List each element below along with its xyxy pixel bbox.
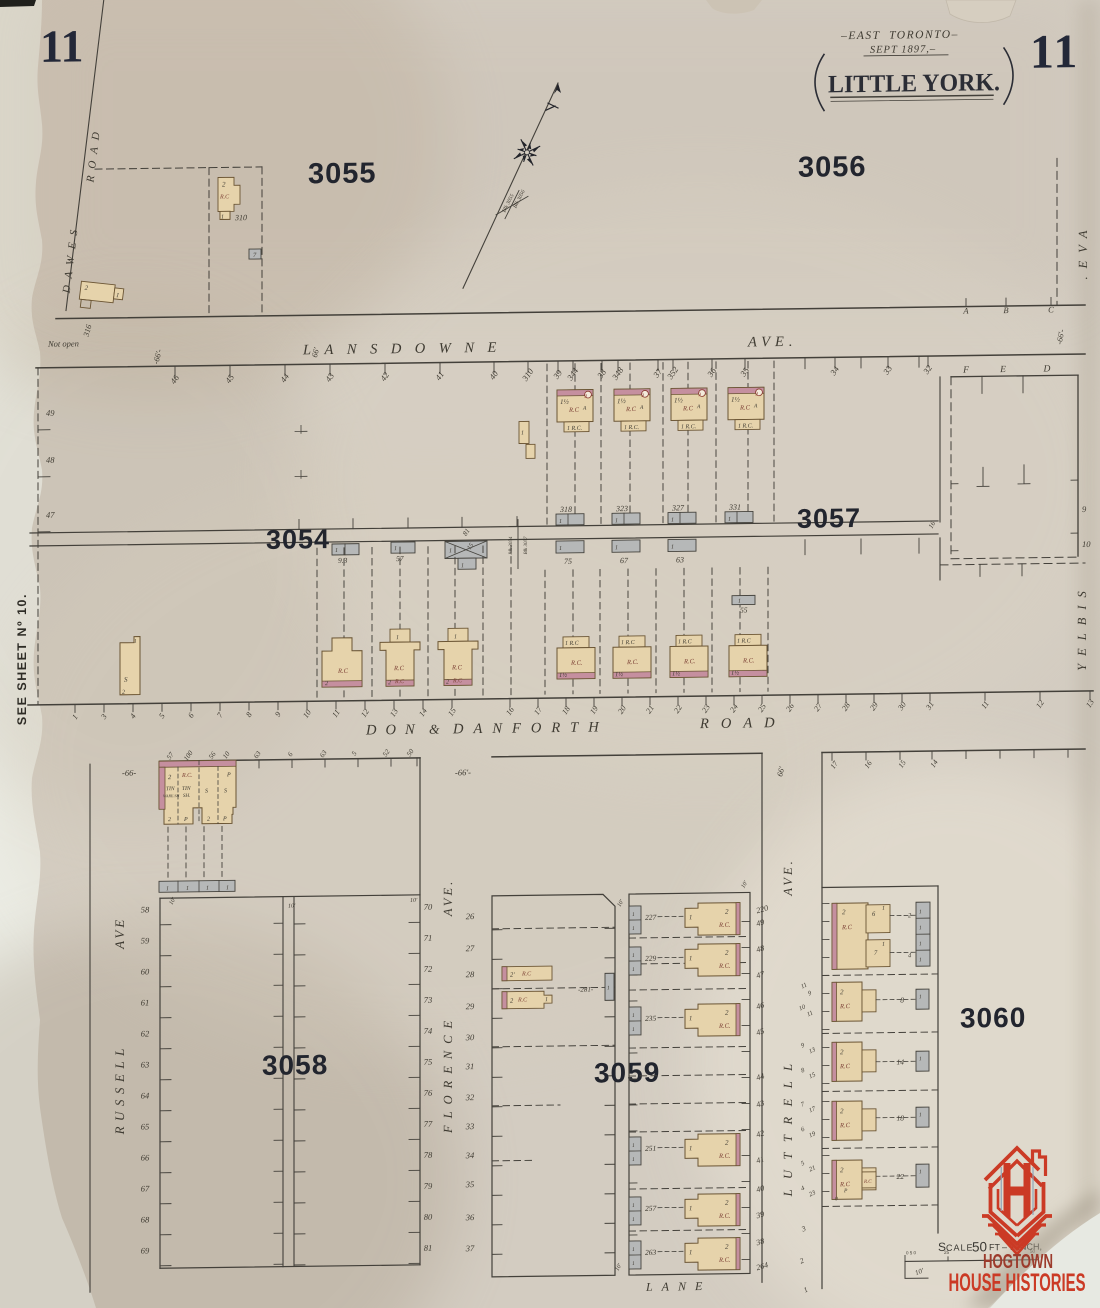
svg-text:R.C.: R.C. [718,922,731,929]
svg-text:1 R.C: 1 R.C [737,638,752,644]
svg-text:LANSDOWNE: LANSDOWNE [302,340,510,359]
svg-text:SEPT 1897,–: SEPT 1897,– [870,44,936,56]
svg-text:A: A [582,406,587,412]
svg-text:229: 229 [645,954,656,963]
svg-text:71: 71 [424,933,432,943]
svg-text:1: 1 [632,1261,635,1267]
svg-text:DANFORTH: DANFORTH [452,719,609,737]
svg-text:R.C.: R.C. [742,657,755,664]
svg-text:28: 28 [466,969,475,979]
svg-text:75: 75 [424,1057,432,1067]
svg-text:9: 9 [584,394,587,400]
svg-text:2: 2 [446,679,449,685]
svg-text:R.C: R.C [451,664,463,671]
svg-text:A: A [962,306,969,316]
svg-text:1: 1 [919,1112,922,1118]
svg-text:P: P [222,816,227,822]
svg-text:1: 1 [919,957,922,963]
svg-text:1: 1 [671,544,674,550]
svg-text:–EAST TORONTO–: –EAST TORONTO– [840,29,959,43]
svg-text:10′: 10′ [410,898,418,904]
svg-text:49: 49 [46,408,55,418]
svg-text:F: F [962,366,969,376]
svg-text:8: 8 [900,995,904,1004]
svg-text:1: 1 [919,925,922,931]
svg-text:1: 1 [134,639,137,645]
svg-text:1: 1 [166,886,169,892]
svg-text:1: 1 [919,909,922,915]
svg-text:1: 1 [559,546,562,552]
svg-text:11: 11 [1030,25,1079,79]
svg-text:65: 65 [141,1121,149,1131]
svg-text:D: D [1043,364,1051,374]
svg-text:9: 9 [641,393,644,399]
svg-text:S: S [224,788,227,794]
svg-text:DON: DON [365,722,424,739]
svg-text:1: 1 [545,997,548,1003]
svg-text:32: 32 [465,1092,475,1102]
svg-text:2: 2 [222,180,226,188]
svg-text:3058: 3058 [262,1049,328,1081]
svg-text:1 R.C: 1 R.C [565,641,580,647]
svg-text:25: 25 [944,1250,950,1255]
svg-text:77: 77 [424,1119,433,1129]
svg-text:70: 70 [424,902,433,912]
svg-text:1: 1 [632,1027,635,1033]
svg-text:9: 9 [755,391,758,397]
svg-text:R.C.: R.C. [683,658,696,665]
svg-text:R.C: R.C [739,404,751,411]
svg-text:55: 55 [740,605,748,614]
svg-text:HOUSE HISTORIES: HOUSE HISTORIES [949,1269,1086,1297]
svg-text:318: 318 [559,505,572,514]
svg-text:9.3: 9.3 [338,556,348,565]
svg-text:3060: 3060 [960,1002,1026,1034]
svg-text:1: 1 [738,599,741,605]
svg-text:1 R.C.: 1 R.C. [738,423,753,429]
svg-text:1: 1 [186,886,189,892]
svg-text:2: 2 [725,1199,729,1207]
svg-text:327: 327 [671,503,685,512]
svg-text:R.C.: R.C. [718,1023,731,1030]
svg-text:AVE.: AVE. [441,879,455,918]
svg-text:-66-: -66- [122,768,136,778]
svg-text:R.C: R.C [839,1181,851,1188]
svg-text:1: 1 [615,518,618,524]
svg-text:FLORENCE: FLORENCE [441,1014,455,1134]
svg-text:1: 1 [559,519,562,525]
svg-text:2: 2 [725,1009,729,1017]
svg-text:11: 11 [40,20,83,72]
svg-text:R.C.: R.C. [181,773,193,779]
svg-text:59: 59 [141,935,150,945]
svg-text:1: 1 [607,985,610,991]
svg-text:1: 1 [206,886,209,892]
svg-text:1½: 1½ [731,670,739,677]
svg-text:66: 66 [141,1152,150,1162]
svg-text:2: 2 [725,1139,729,1147]
svg-text:R.C: R.C [839,1003,851,1010]
svg-text:251: 251 [645,1144,656,1153]
svg-text:1 R.C.: 1 R.C. [624,425,639,431]
svg-text:58: 58 [141,904,150,914]
svg-text:2: 2 [725,949,729,957]
svg-text:67: 67 [141,1183,150,1193]
svg-text:&: & [429,722,440,737]
svg-text:2: 2 [840,1166,844,1174]
svg-text:1: 1 [919,994,922,1000]
svg-text:18: 18 [897,1113,905,1122]
svg-text:3059: 3059 [594,1057,660,1089]
svg-text:1: 1 [689,1015,692,1022]
svg-text:227: 227 [645,913,656,922]
svg-text:R.C: R.C [394,679,405,685]
svg-text:1: 1 [454,634,457,640]
svg-text:323: 323 [615,504,628,513]
svg-text:62: 62 [141,1028,150,1038]
svg-text:LANE: LANE [645,1279,711,1294]
svg-text:1½: 1½ [615,671,623,678]
svg-text:SH.: SH. [183,794,190,799]
svg-text:80: 80 [424,1212,433,1222]
svg-text:R.C: R.C [625,406,637,413]
svg-text:Not open: Not open [47,338,79,348]
svg-text:1: 1 [632,1013,635,1019]
svg-text:R.C: R.C [393,665,405,672]
svg-text:2: 2 [725,908,729,916]
svg-text:P: P [843,1188,848,1194]
svg-text:1: 1 [461,563,464,569]
svg-text:9: 9 [1082,504,1087,514]
svg-text:R.C.: R.C. [718,963,731,970]
svg-text:B: B [1003,305,1008,315]
svg-text:2: 2 [122,690,125,696]
svg-text:R.C: R.C [568,407,580,414]
svg-text:R.C: R.C [841,924,853,931]
svg-text:1: 1 [632,953,635,959]
svg-text:R.C: R.C [337,668,349,675]
svg-text:3055: 3055 [308,157,377,190]
svg-text:2: 2 [207,817,210,823]
svg-text:R.C: R.C [452,678,463,684]
svg-text:TIN: TIN [166,786,175,792]
svg-text:1 R.C: 1 R.C [678,639,693,645]
svg-text:R.C: R.C [839,1122,851,1129]
svg-text:0 5 0: 0 5 0 [906,1250,917,1255]
svg-text:1: 1 [671,517,674,523]
svg-text:35: 35 [465,1179,474,1189]
svg-text:TIN: TIN [182,786,191,792]
svg-text:RUSSELL: RUSSELL [112,1043,127,1135]
svg-text:2: 2 [842,908,846,916]
svg-text:263: 263 [645,1248,656,1257]
svg-text:1: 1 [632,1203,635,1209]
svg-text:26: 26 [466,911,475,921]
svg-text:1: 1 [632,1157,635,1163]
svg-text:1: 1 [689,1145,692,1152]
svg-text:2: 2 [168,817,171,823]
svg-text:R.C: R.C [839,1063,851,1070]
svg-text:2: 2 [388,680,391,686]
svg-text:1: 1 [632,912,635,918]
svg-text:R.C.: R.C. [718,1153,731,1160]
svg-text:R.C: R.C [521,971,532,977]
svg-text:1: 1 [919,1056,922,1062]
svg-text:74: 74 [424,1026,433,1036]
svg-text:1: 1 [919,941,922,947]
svg-text:76: 76 [424,1088,433,1098]
svg-text:1: 1 [226,885,229,891]
svg-text:A: A [696,404,701,410]
svg-text:1: 1 [615,545,618,551]
svg-text:2: 2 [325,681,328,687]
svg-text:1: 1 [632,967,635,973]
svg-text:CALE: CALE [946,1242,974,1252]
svg-text:1: 1 [632,1247,635,1253]
svg-text:2: 2 [840,1107,844,1115]
svg-text:-66′-: -66′- [455,767,471,777]
svg-text:0: 0 [835,1196,838,1202]
svg-text:YELBIS: YELBIS [1075,583,1089,671]
svg-text:A: A [639,405,644,411]
svg-text:R.C: R.C [863,1180,872,1185]
svg-text:1: 1 [689,955,692,962]
svg-text:1: 1 [882,942,885,948]
svg-text:36: 36 [465,1212,475,1222]
svg-text:1: 1 [689,914,692,921]
svg-text:LUTTRELL: LUTTRELL [781,1053,795,1197]
svg-text:63: 63 [141,1059,149,1069]
svg-text:P: P [226,772,231,778]
svg-text:2: 2 [725,1243,729,1251]
svg-text:33: 33 [465,1121,474,1131]
svg-text:34: 34 [465,1150,475,1160]
svg-text:AVE.: AVE. [781,858,795,897]
svg-text:30: 30 [465,1032,475,1042]
svg-text:R.C.: R.C. [570,660,583,667]
svg-text:2: 2 [840,1048,844,1056]
svg-text:WARE.SH: WARE.SH [163,793,180,798]
svg-text:ROAD: ROAD [699,715,787,732]
svg-text:27: 27 [466,943,475,953]
svg-text:E: E [999,365,1006,375]
svg-text:9: 9 [698,392,701,398]
svg-text:10′: 10′ [288,903,296,909]
svg-text:1: 1 [335,548,338,554]
svg-text:Blk 3057: Blk 3057 [524,536,529,554]
svg-text:1: 1 [396,635,399,641]
svg-text:37: 37 [465,1243,475,1253]
svg-text:22: 22 [897,1172,905,1181]
svg-text:68: 68 [141,1214,150,1224]
svg-text:14: 14 [897,1057,905,1066]
svg-text:3057: 3057 [797,503,861,534]
svg-text:1: 1 [632,1217,635,1223]
svg-text:47: 47 [46,510,55,520]
svg-text:2′: 2′ [510,972,515,979]
svg-text:P: P [183,817,188,823]
svg-text:1: 1 [632,1143,635,1149]
svg-text:1: 1 [689,1249,692,1256]
svg-text:29: 29 [466,1001,475,1011]
svg-text:R.C.: R.C. [718,1213,731,1220]
svg-text:S: S [205,789,208,795]
svg-text:1½: 1½ [674,396,683,404]
svg-text:1 R.C.: 1 R.C. [681,424,696,430]
svg-text:310: 310 [234,213,247,222]
svg-text:73: 73 [424,995,432,1005]
svg-text:1: 1 [919,1169,922,1175]
svg-text:78: 78 [424,1150,433,1160]
svg-text:1: 1 [689,1205,692,1212]
svg-text:1: 1 [521,430,524,436]
svg-text:1: 1 [882,906,885,912]
svg-text:10: 10 [1082,539,1091,549]
svg-text:1: 1 [632,926,635,932]
svg-text:72: 72 [424,964,433,974]
svg-text:1½: 1½ [617,397,626,405]
svg-text:3056: 3056 [798,151,867,184]
svg-text:1: 1 [728,517,731,523]
svg-text:75: 75 [564,557,572,566]
svg-text:S: S [124,676,128,684]
svg-text:3054: 3054 [266,524,330,555]
svg-text:67: 67 [620,556,629,565]
svg-text:R.C: R.C [682,405,694,412]
svg-text:61: 61 [141,997,149,1007]
svg-text:64: 64 [141,1090,150,1100]
svg-text:235: 235 [645,1014,656,1023]
svg-text:1: 1 [221,214,224,220]
svg-text:60: 60 [141,966,150,976]
svg-text:257: 257 [645,1204,656,1213]
svg-text:R.C: R.C [219,194,230,200]
svg-text:AVE.: AVE. [747,334,797,351]
svg-text:1½: 1½ [672,670,680,677]
svg-text:R.C.: R.C. [626,659,639,666]
svg-text:1: 1 [394,546,397,552]
svg-text:R.C: R.C [517,997,528,1003]
svg-text:-281-: -281- [578,986,594,994]
svg-text:2: 2 [840,988,844,996]
svg-text:331: 331 [728,503,741,512]
svg-text:SEE SHEET Nº 10.: SEE SHEET Nº 10. [15,593,29,725]
svg-text:C: C [1048,304,1054,314]
svg-text:81: 81 [424,1243,432,1253]
svg-text:R.C.: R.C. [718,1257,731,1264]
svg-text:A: A [753,403,758,409]
svg-text:1: 1 [449,548,452,554]
svg-text:48: 48 [46,455,55,465]
svg-text:1½: 1½ [731,396,740,404]
svg-text:AVE: AVE [112,917,127,950]
svg-text:.EVA: .EVA [1076,222,1090,279]
svg-text:1 R.C.: 1 R.C. [567,426,582,432]
svg-text:79: 79 [424,1181,433,1191]
svg-text:63: 63 [676,555,684,564]
svg-text:1 R.C: 1 R.C [621,640,636,646]
svg-text:31: 31 [465,1061,474,1071]
svg-text:1½: 1½ [559,672,567,679]
svg-text:Blk 3054: Blk 3054 [509,536,514,554]
svg-text:1½: 1½ [560,398,569,406]
svg-text:LITTLE YORK.: LITTLE YORK. [828,69,1000,98]
svg-text:69: 69 [141,1245,150,1255]
